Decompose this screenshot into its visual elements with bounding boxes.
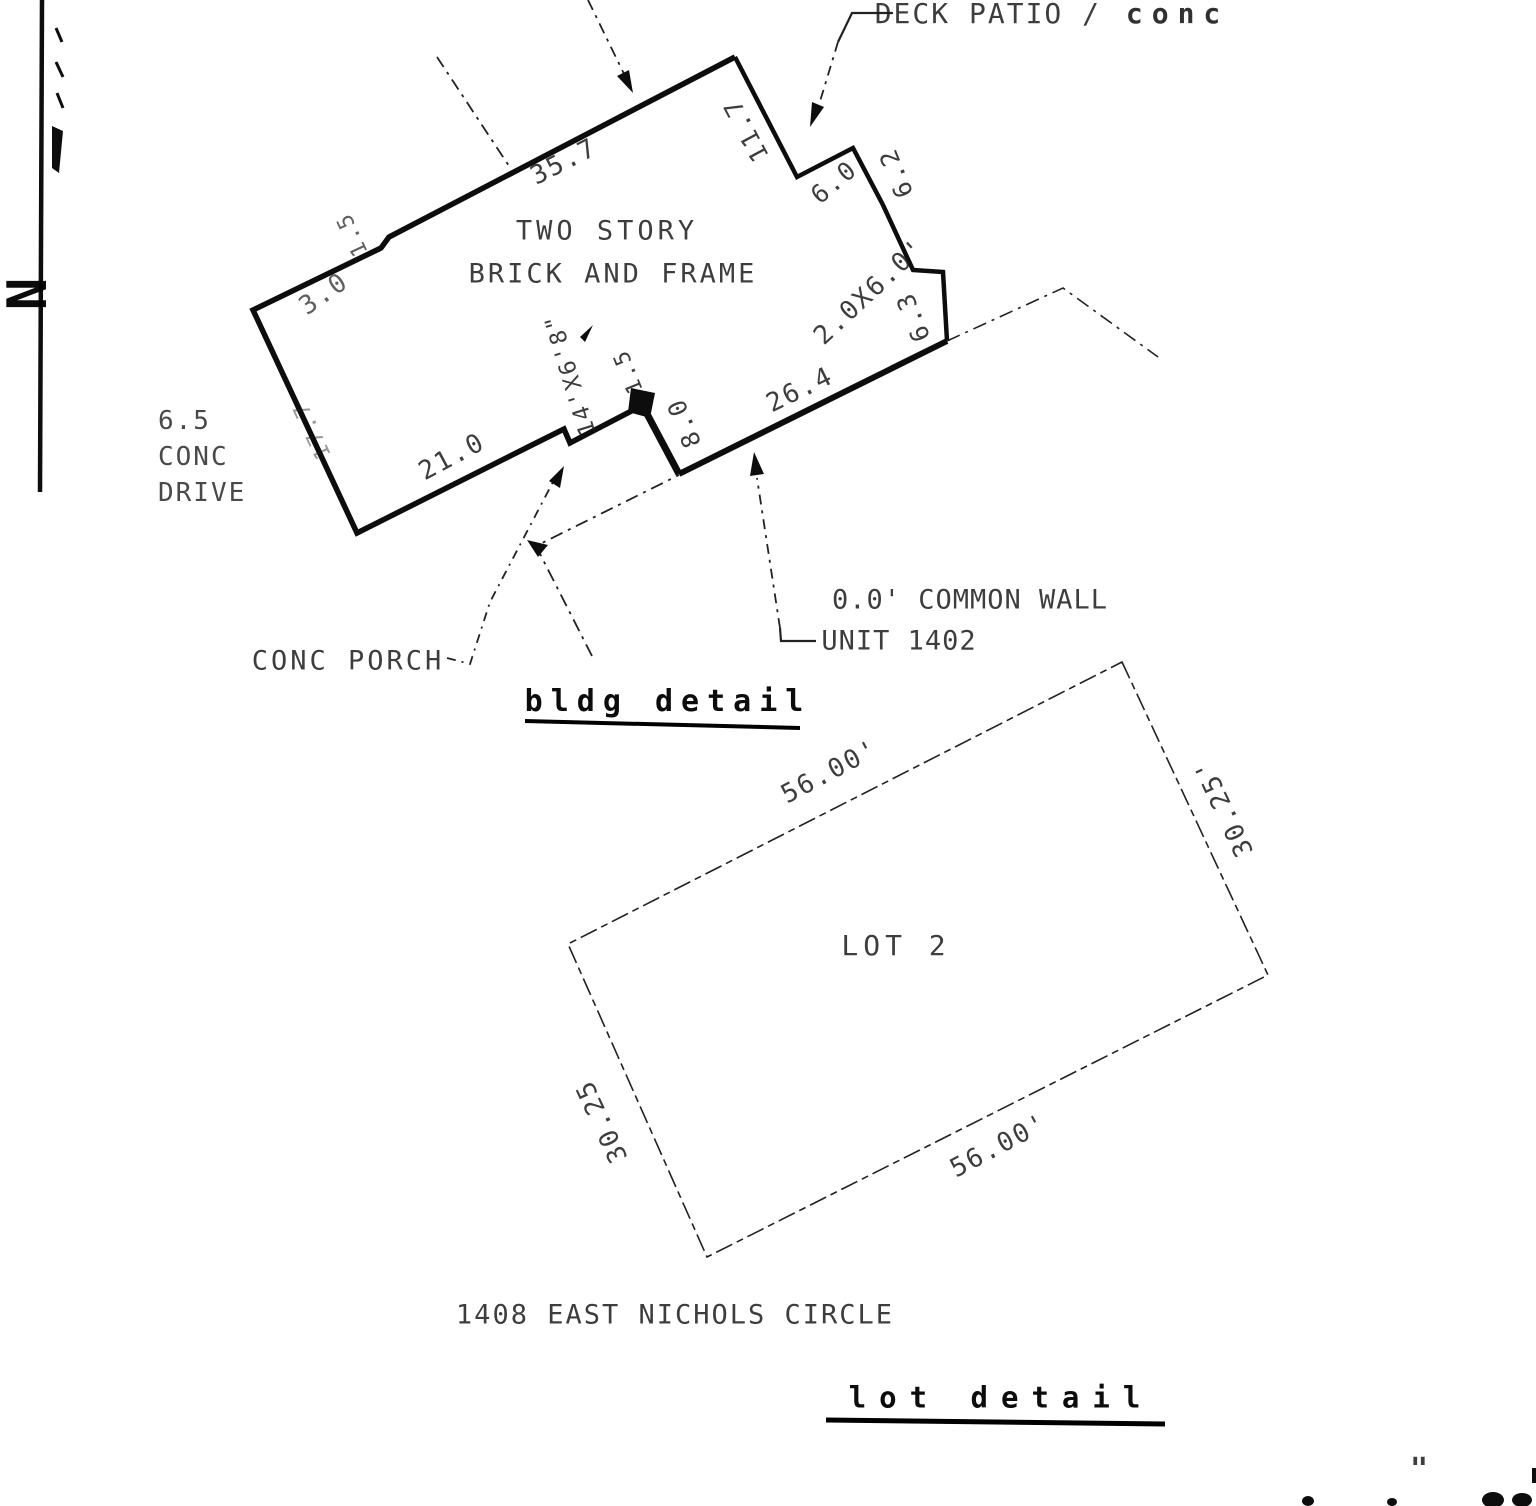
north-label: N <box>1 276 55 311</box>
survey-sketch-page: N TWO STORY BRICK AND FRAME DECK PATIO /… <box>0 0 1536 1506</box>
leader-top-dashed <box>588 0 626 78</box>
deck-patio-label: DECK PATIO / conc <box>875 0 1230 28</box>
north-arrow-shaft <box>40 0 42 492</box>
address-label: 1408 EAST NICHOLS CIRCLE <box>456 1302 894 1329</box>
lot-number-label: LOT 2 <box>841 932 950 960</box>
conc-drive-label: 6.5 CONC DRIVE <box>158 403 246 511</box>
lot-detail-underline <box>826 1420 1165 1424</box>
bldg-detail-title: bldg detail <box>525 687 812 717</box>
north-arrow-feather-dashes <box>56 28 63 108</box>
building-wall-bottom-right <box>679 341 947 474</box>
common-wall-arrowhead <box>750 452 764 476</box>
north-arrow-feather <box>52 126 63 173</box>
common-wall-label-line1: 0.0' COMMON WALL <box>832 587 1108 614</box>
common-wall-label-line2: UNIT 1402 <box>821 628 976 655</box>
deck-patio-hand-note: conc <box>1126 0 1229 30</box>
conc-porch-arrowhead <box>549 466 564 488</box>
common-wall-leader-elbow <box>780 628 816 641</box>
common-wall-leader-dashed <box>757 478 780 628</box>
conc-porch-leader <box>447 482 553 664</box>
deck-patio-text: DECK PATIO / <box>875 0 1101 30</box>
property-line-lower-right <box>947 288 1158 357</box>
bldg-detail-underline <box>525 721 800 728</box>
conc-drive-line3: DRIVE <box>158 475 246 511</box>
corner-quote-fragment: " <box>1410 1455 1430 1485</box>
lot-detail-title: lot detail <box>849 1384 1154 1413</box>
deck-patio-leader-dashed <box>818 42 838 108</box>
linework-svg <box>0 0 1536 1506</box>
building-title-line1: TWO STORY <box>516 218 698 245</box>
building-title-line2: BRICK AND FRAME <box>469 261 758 288</box>
conc-drive-line2: CONC <box>158 439 246 475</box>
deck-patio-arrowhead <box>810 102 824 127</box>
leader-top-arrowhead <box>617 70 633 93</box>
property-line-upper-left <box>437 57 509 166</box>
conc-porch-label: CONC PORCH <box>252 648 445 675</box>
property-line-through-wall <box>536 475 679 656</box>
conc-drive-line1: 6.5 <box>158 403 246 439</box>
porch-dim-arrowhead <box>580 325 593 342</box>
